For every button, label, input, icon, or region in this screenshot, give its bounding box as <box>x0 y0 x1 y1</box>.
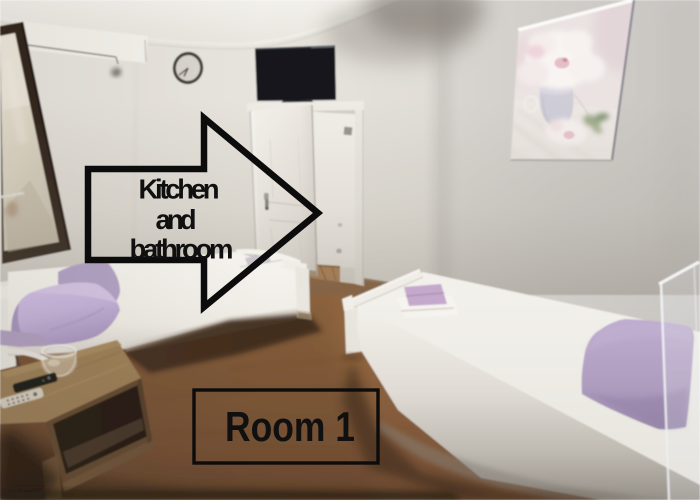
svg-text:bathroom: bathroom <box>130 234 234 265</box>
svg-text:Room 1: Room 1 <box>225 403 355 450</box>
svg-text:and: and <box>156 204 197 235</box>
svg-text:Kitchen: Kitchen <box>139 174 220 205</box>
